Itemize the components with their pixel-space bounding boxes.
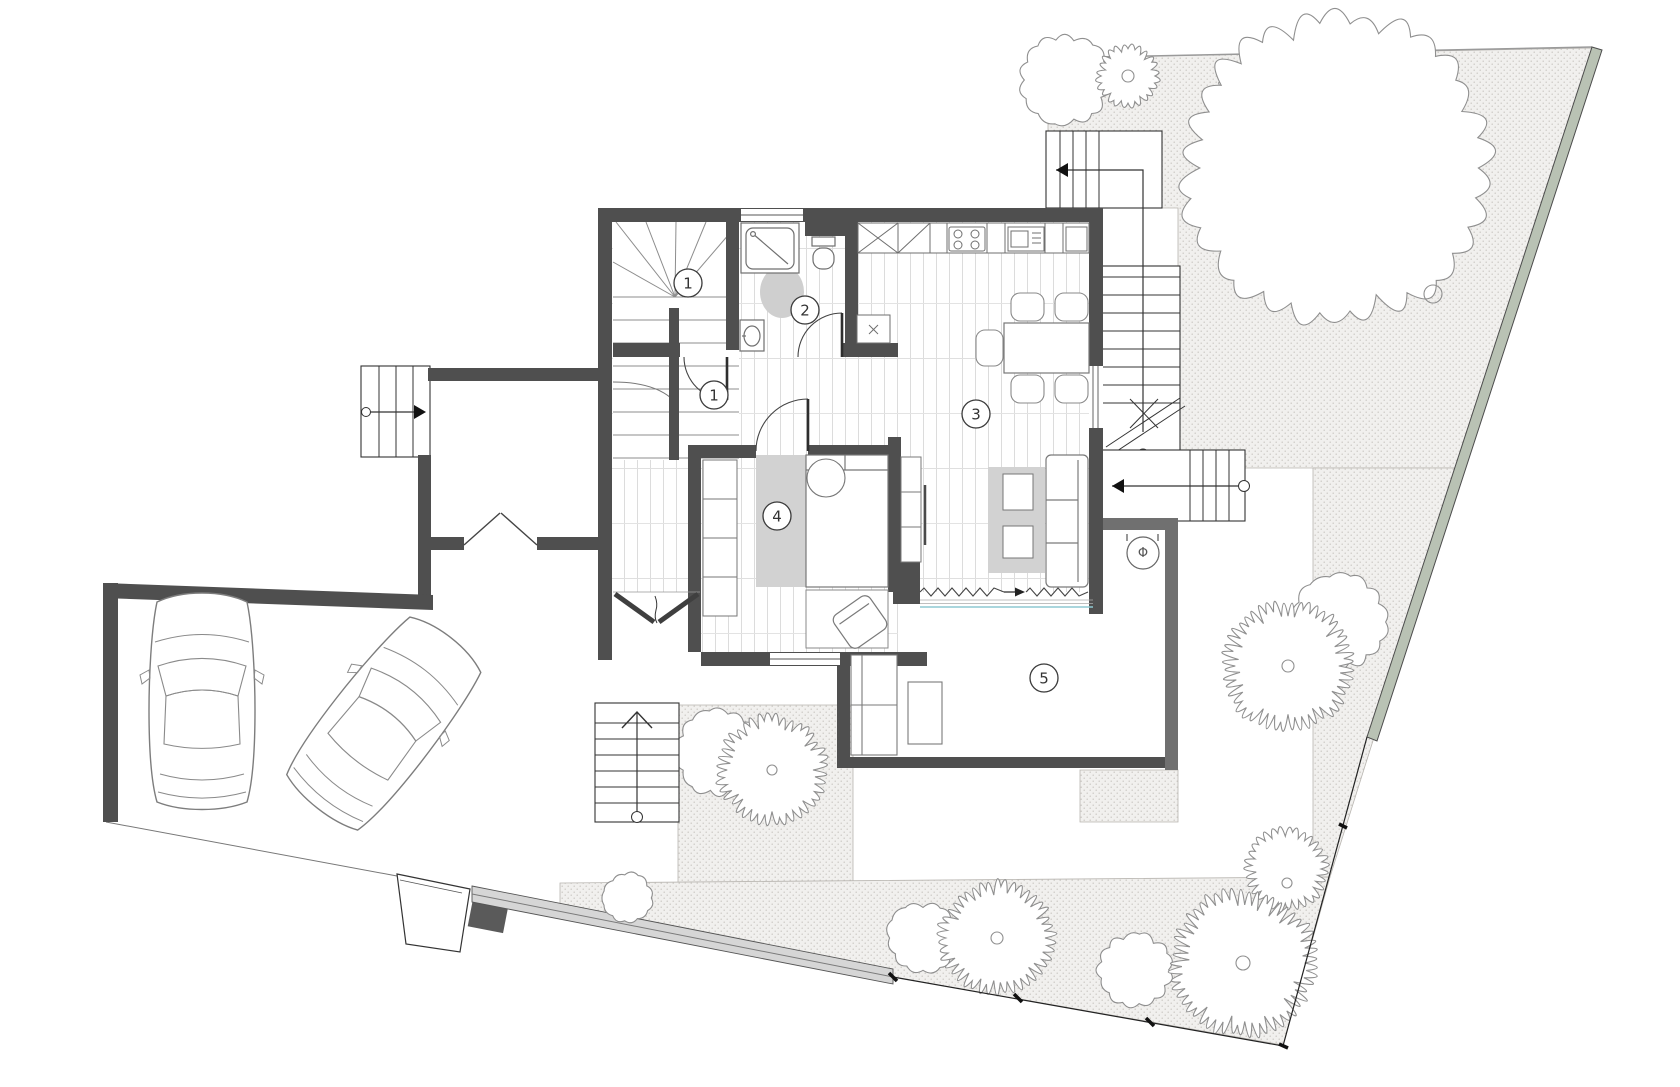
terrace-furniture [851,655,942,755]
svg-text:1: 1 [709,387,719,405]
dining-table [1004,323,1089,373]
glazing-track [920,600,1093,607]
svg-text:5: 5 [1039,670,1049,688]
kitchen-counter [858,223,1089,253]
svg-text:2: 2 [800,302,810,320]
car-1 [140,593,264,810]
sofa [1046,455,1088,587]
stairs-west-exterior [361,366,430,457]
column-marker: Φ [1127,534,1159,569]
wardrobe [703,460,737,616]
bath-sink-icon [740,320,764,351]
courtyard-gate-door [464,513,537,545]
tree-canopy [602,872,653,923]
coffee-table [1003,526,1033,558]
room-label-3-living: 3 [962,400,990,428]
utility-box [857,315,890,343]
symbols-layer: Φ [1127,534,1159,569]
kitchen-sink-icon [1008,227,1044,251]
floor-plan-page: Φ 112345 [0,0,1680,1087]
tv-bench [901,457,925,562]
cooktop-icon [949,227,985,251]
room-label-2-bath: 2 [791,296,819,324]
car-2 [269,600,500,847]
entrance-door [613,592,700,623]
room-label-4-bedroom: 4 [763,502,791,530]
stairs-east-exterior [1100,450,1250,521]
terrace-table [908,682,942,744]
room-label-1-stair: 1 [674,269,702,297]
toilet-icon [812,237,835,269]
room-label-5-terrace: 5 [1030,664,1058,692]
svg-text:3: 3 [971,406,981,424]
svg-text:1: 1 [683,275,693,293]
floor-plan: Φ 112345 [0,0,1680,1087]
bedside-table [807,459,845,497]
stairs-south-exterior [595,703,679,823]
room-label-1-hall: 1 [700,381,728,409]
fridge-icon [1066,227,1087,251]
coffee-table [1003,474,1033,510]
shower-icon [741,223,799,273]
svg-text:Φ: Φ [1138,546,1148,561]
svg-text:4: 4 [772,508,782,526]
